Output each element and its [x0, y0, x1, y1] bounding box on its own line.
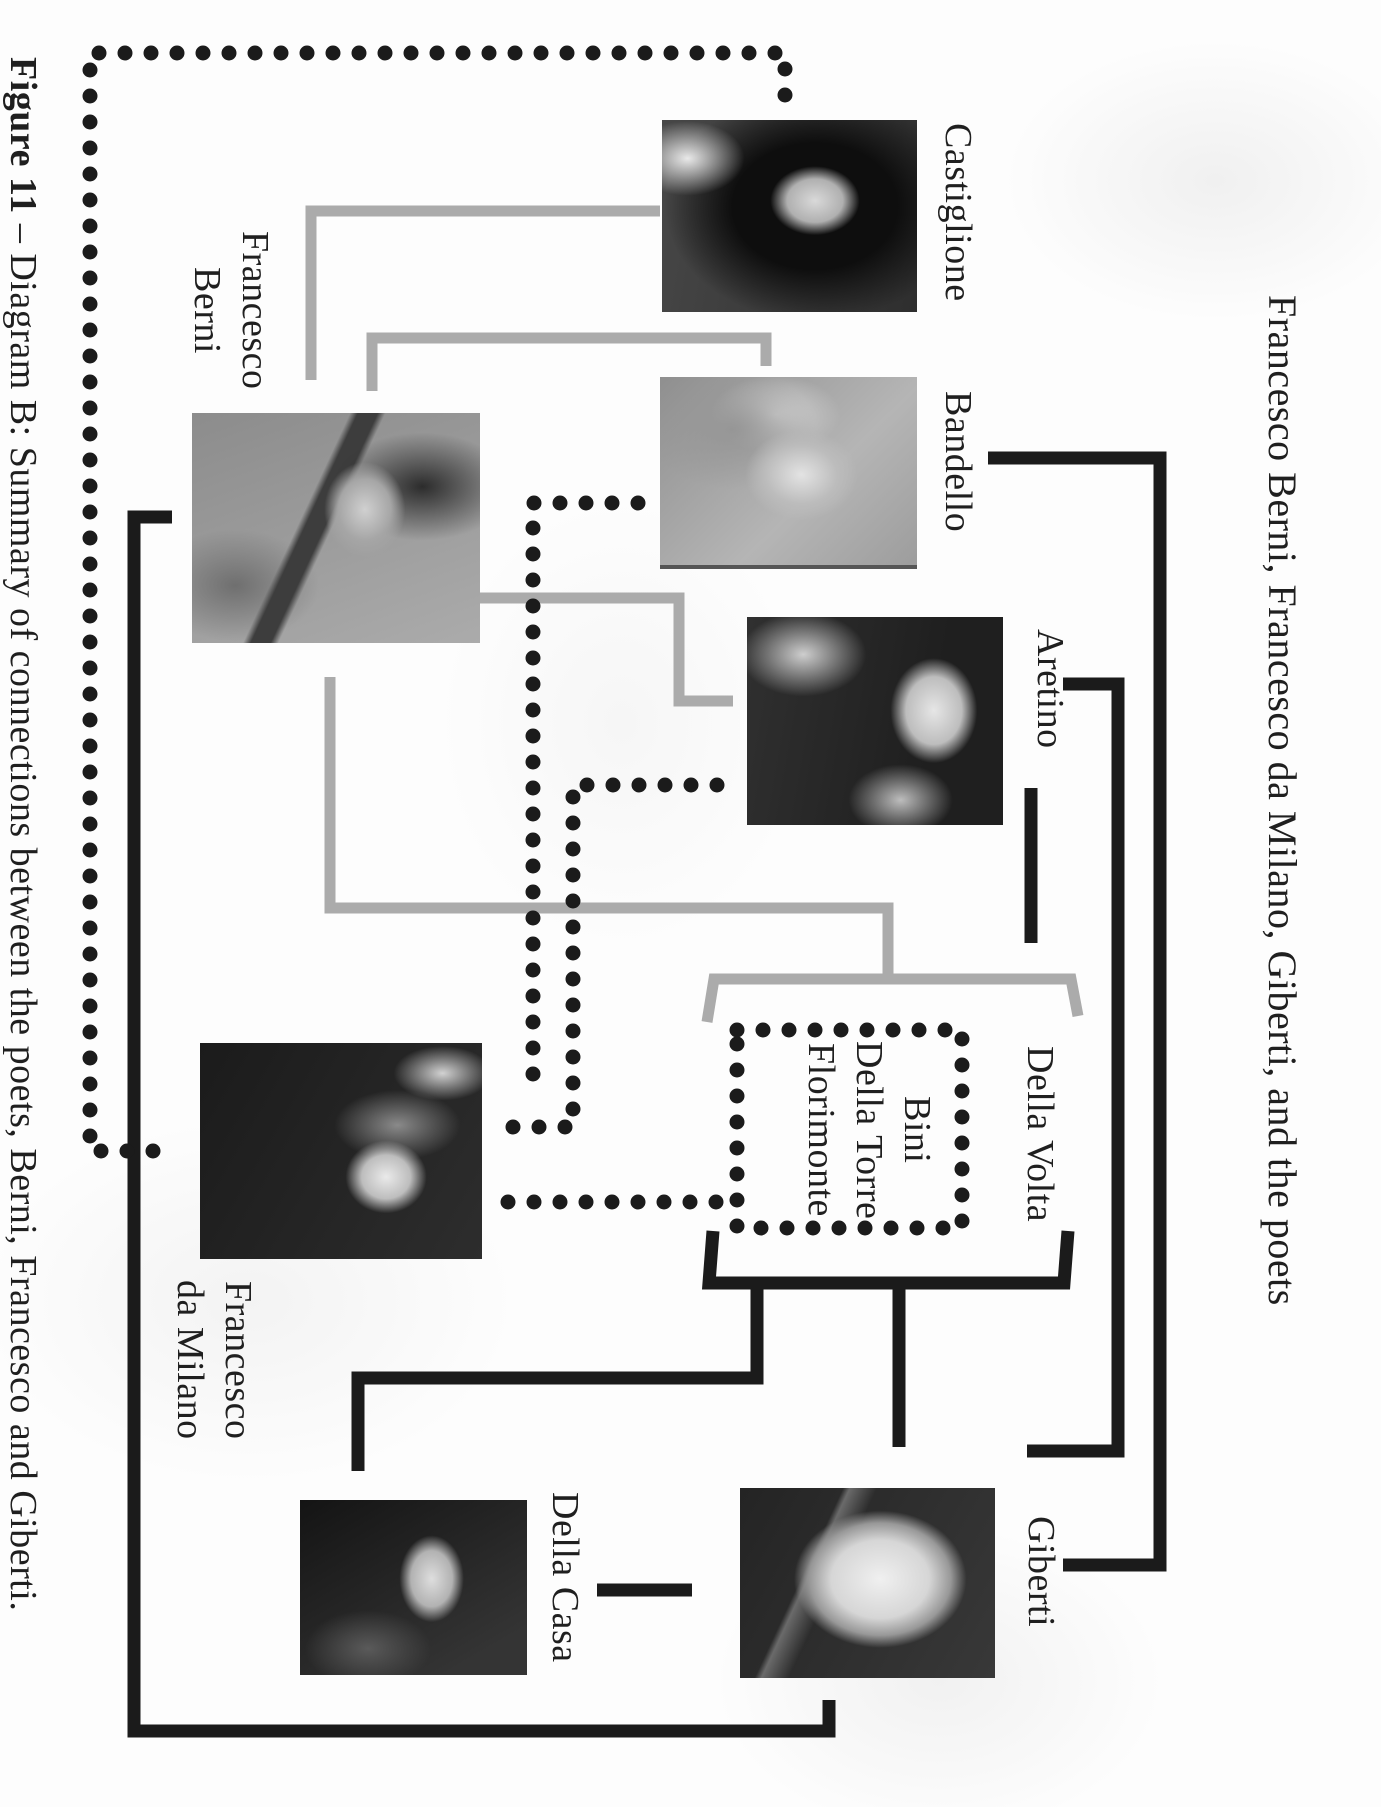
connector-berni-group-bracket: [707, 979, 1078, 1022]
portrait-bandello: [660, 377, 917, 565]
label-castiglione: Castiglione: [934, 123, 982, 302]
figure-caption: Figure 11 – Diagram B: Summary of connec…: [0, 57, 46, 1807]
label-giberti: Giberti: [1017, 1516, 1065, 1627]
label-francesco-berni: Francesco Berni: [183, 228, 279, 393]
connector-group-dellacasa: [358, 1283, 757, 1471]
figure-caption-text: – Diagram B: Summary of connections betw…: [2, 224, 44, 1611]
connector-castiglione-berni: [311, 211, 660, 380]
portrait-della-casa: [300, 1500, 527, 1675]
portrait-francesco-berni: [192, 413, 480, 643]
scanned-figure-page: Castiglione Bandello Aretino Francesco B…: [0, 0, 1381, 1807]
figure-caption-number: Figure 11: [2, 57, 44, 224]
label-group-bini-dellatorre-florimonte: Bini Della Torre Florimonte: [797, 1035, 941, 1225]
connector-group-bracket: [709, 1231, 1068, 1283]
connector-aretino-berni: [479, 598, 733, 701]
portrait-castiglione: [662, 120, 917, 312]
connector-dotted-bandello-damilano: [533, 503, 638, 1083]
label-aretino: Aretino: [1026, 629, 1074, 749]
portrait-francesco-da-milano: [200, 1043, 482, 1259]
label-francesco-da-milano: Francesco da Milano: [166, 1280, 262, 1440]
portrait-giberti: [740, 1488, 995, 1678]
figure-title: Francesco Berni, Francesco da Milano, Gi…: [1256, 295, 1308, 1306]
label-della-volta: Della Volta: [1016, 1046, 1064, 1222]
label-bandello: Bandello: [934, 391, 982, 532]
portrait-aretino: [747, 617, 1003, 825]
label-della-casa: Della Casa: [541, 1492, 589, 1663]
